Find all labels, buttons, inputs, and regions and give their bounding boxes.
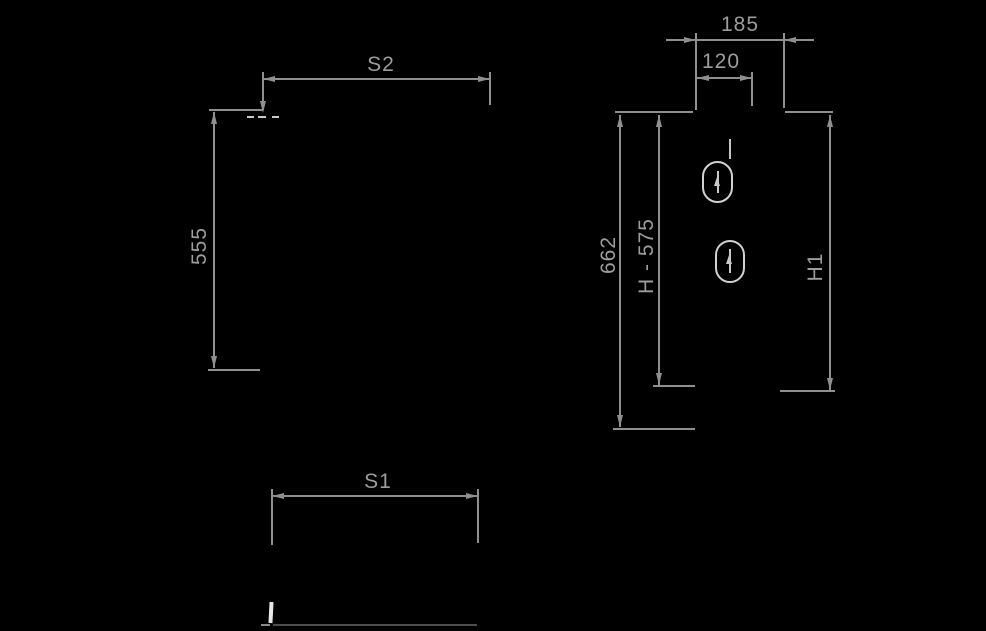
extension-line — [209, 109, 263, 111]
object-edge-dash — [261, 624, 270, 626]
extension-line — [208, 369, 260, 371]
arrow-down-icon — [656, 373, 662, 385]
object-edge-mark — [268, 602, 273, 623]
extension-line — [653, 385, 695, 387]
extension-line — [477, 489, 479, 543]
dim-label-662: 662 — [599, 225, 619, 285]
extension-line — [613, 428, 695, 430]
arrow-down-icon — [617, 415, 623, 427]
dim-label-h1: H1 — [806, 242, 826, 292]
object-top-edge — [785, 111, 833, 113]
arrow-up-icon — [827, 115, 833, 127]
dim-label-s2: S2 — [351, 55, 411, 75]
arrow-down-icon — [827, 378, 833, 390]
arrow-up-icon — [211, 112, 217, 124]
dim-label-s1: S1 — [348, 472, 408, 492]
drawing-canvas: S2 555 S1 185 120 — [0, 0, 986, 631]
extension-line — [780, 390, 835, 392]
dim-line-h1 — [829, 115, 831, 390]
arrow-left-icon — [697, 75, 709, 81]
extension-line — [751, 72, 753, 106]
object-top-edge — [615, 111, 693, 113]
arrow-up-icon — [656, 115, 662, 127]
dim-label-555: 555 — [190, 216, 210, 276]
slot-arrow-up-icon — [726, 255, 732, 264]
object-stub-line — [729, 139, 731, 159]
hidden-edge-dash — [258, 116, 266, 118]
hidden-edge-dash — [272, 116, 279, 118]
arrow-up-icon — [617, 115, 623, 127]
extension-line — [271, 489, 273, 545]
extension-line — [695, 33, 697, 110]
arrow-left-icon — [272, 493, 284, 499]
arrow-down-icon — [260, 101, 266, 113]
object-bottom-edge — [273, 624, 477, 626]
dim-line-555 — [213, 112, 215, 368]
hidden-edge-dash — [247, 116, 254, 118]
extension-line — [489, 72, 491, 105]
dim-line-h575 — [658, 115, 660, 385]
dim-line-s2 — [263, 78, 490, 80]
dim-label-185: 185 — [710, 15, 770, 35]
arrow-left-icon — [784, 37, 796, 43]
extension-line — [783, 33, 785, 108]
arrow-down-icon — [211, 356, 217, 368]
dim-label-h-minus-575: H - 575 — [637, 211, 657, 301]
arrow-left-icon — [263, 76, 275, 82]
dim-line-s1 — [272, 495, 478, 497]
slot-arrow-up-icon — [714, 177, 720, 186]
dim-label-120: 120 — [691, 52, 751, 72]
